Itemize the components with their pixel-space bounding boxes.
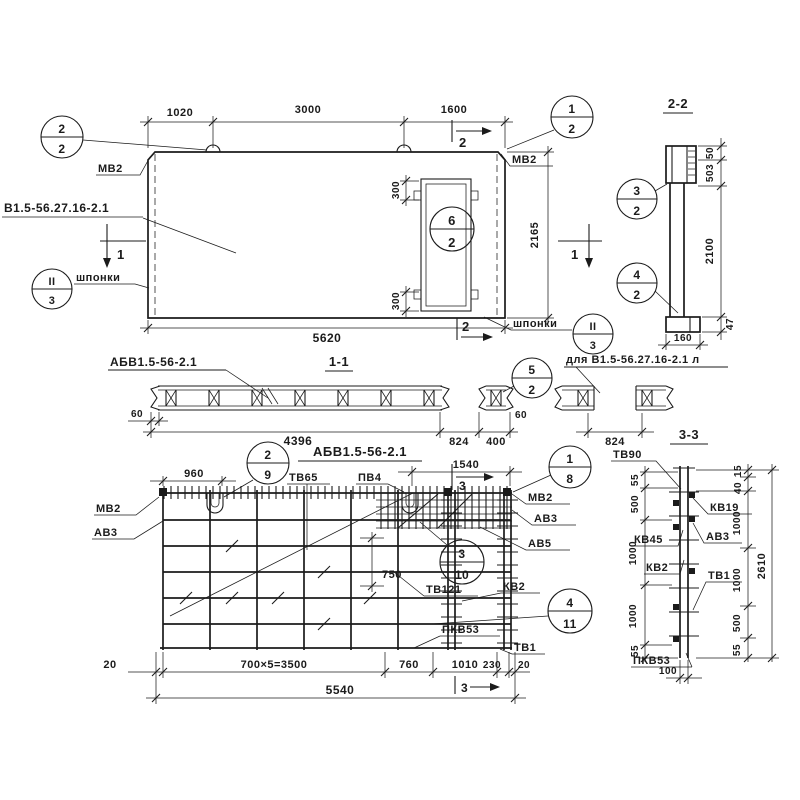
strip-geometry bbox=[151, 386, 513, 410]
sec11-alt-fragment: для В1.5-56.27.16-2.1 л 824 bbox=[555, 354, 728, 448]
dim-1010: 1010 bbox=[452, 659, 478, 671]
callout-bottom: 11 bbox=[563, 617, 577, 631]
callout-1-2: 1 2 bbox=[507, 96, 593, 149]
label-mv2-left: МВ2 bbox=[96, 503, 121, 515]
callout-bottom: 10 bbox=[455, 568, 469, 582]
callout-top: 1 bbox=[568, 102, 575, 116]
section-marker-1-left: 1 bbox=[100, 224, 146, 268]
label-mv2-right: МВ2 bbox=[512, 154, 537, 166]
callout-bottom: 3 bbox=[590, 340, 597, 352]
label-alt: для В1.5-56.27.16-2.1 л bbox=[566, 354, 700, 366]
dim-40: 40 bbox=[733, 482, 744, 494]
facade-top-dims: 1020 3000 1600 bbox=[140, 104, 513, 148]
marker-2: 2 bbox=[462, 319, 470, 334]
dim-500: 500 bbox=[630, 495, 641, 513]
label-pkv53: ПКВ53 bbox=[442, 624, 479, 636]
dim-824a: 824 bbox=[449, 436, 469, 448]
label-pv4: ПВ4 bbox=[358, 472, 382, 484]
dim-20-right: 20 bbox=[518, 660, 530, 671]
dim-1600: 1600 bbox=[441, 104, 467, 116]
dim-503: 503 bbox=[705, 164, 716, 182]
dim-5540: 5540 bbox=[326, 683, 355, 697]
opening-dims: 300 300 bbox=[391, 175, 419, 317]
section-3-3: 3-3 ТВ90 КВ45 КВ2 ПКВ53 КВ19 АВ3 bbox=[611, 427, 779, 684]
label-tv1: ТВ1 bbox=[708, 570, 730, 582]
callout-top: 5 bbox=[528, 363, 535, 377]
bar-geometry bbox=[669, 466, 699, 658]
plan-title: АБВ1.5-56-2.1 bbox=[313, 444, 407, 459]
dim-55-bottom: 55 bbox=[630, 645, 641, 657]
callout-bottom: 8 bbox=[566, 472, 573, 486]
label-keys-right: шпонки bbox=[513, 318, 557, 330]
section-marker-2-top: 2 bbox=[452, 120, 492, 150]
dim-300-top: 300 bbox=[391, 181, 402, 199]
dim-50: 50 bbox=[705, 147, 716, 159]
dim-1000c: 1000 bbox=[732, 511, 743, 535]
door-opening bbox=[414, 179, 478, 311]
section-title: 1-1 bbox=[329, 354, 349, 369]
dim-1540: 1540 bbox=[453, 459, 479, 471]
callout-4-2: 4 2 bbox=[617, 263, 678, 313]
dim-4396: 4396 bbox=[284, 434, 313, 448]
callout-bottom: 2 bbox=[58, 142, 65, 156]
callout-6-2: 6 2 bbox=[430, 207, 474, 251]
callout-bottom: 2 bbox=[633, 288, 640, 302]
marker-2: 2 bbox=[459, 135, 467, 150]
dim-1000d: 1000 bbox=[732, 568, 743, 592]
label-mv2-left: МВ2 bbox=[98, 163, 123, 175]
marker-3: 3 bbox=[459, 479, 466, 493]
callout-bottom: 3 bbox=[49, 295, 56, 307]
callout-bottom: 9 bbox=[264, 468, 271, 482]
dim-230: 230 bbox=[483, 660, 501, 671]
section-marker-2-bottom: 2 bbox=[457, 318, 493, 341]
dim-960: 960 bbox=[184, 468, 204, 480]
label-tv121: ТВ121 bbox=[426, 584, 462, 596]
section-title: 3-3 bbox=[679, 427, 699, 442]
callout-top: 1 bbox=[566, 452, 573, 466]
dim-2610: 2610 bbox=[756, 553, 768, 579]
label-av3: АВ3 bbox=[706, 531, 730, 543]
callout-bottom: 2 bbox=[633, 204, 640, 218]
marker-1: 1 bbox=[571, 247, 579, 262]
callout-top: 3 bbox=[458, 547, 465, 561]
dim-100: 100 bbox=[659, 666, 677, 677]
label-kv2: КВ2 bbox=[503, 581, 525, 593]
label-abv: АБВ1.5-56-2.1 bbox=[110, 355, 197, 369]
label-keys-left: шпонки bbox=[76, 272, 120, 284]
callout-keys-right: II 3 bbox=[573, 314, 613, 354]
callout-top: 6 bbox=[448, 213, 456, 228]
dim-160: 160 bbox=[674, 333, 692, 344]
facade-height-dim: 2165 bbox=[507, 146, 554, 324]
dim-1000b: 1000 bbox=[628, 604, 639, 628]
callout-1-8: 1 8 bbox=[513, 446, 591, 492]
label-panel-mark: В1.5-56.27.16-2.1 bbox=[4, 201, 109, 215]
label-tv90: ТВ90 bbox=[613, 449, 642, 461]
dim-1020: 1020 bbox=[167, 107, 193, 119]
label-av5: АВ5 bbox=[528, 538, 552, 550]
dim-15: 15 bbox=[733, 465, 744, 477]
facade-view: 1020 3000 1600 5620 2165 300 bbox=[2, 96, 613, 354]
facade-labels: МВ2 В1.5-56.27.16-2.1 МВ2 шпонки шпонки bbox=[2, 154, 572, 330]
dim-47: 47 bbox=[725, 318, 736, 330]
panel-drawing: 1020 3000 1600 5620 2165 300 bbox=[0, 0, 800, 800]
label-kv2: КВ2 bbox=[646, 562, 668, 574]
dim-760: 760 bbox=[399, 659, 419, 671]
reinforcement-plan: АБВ1.5-56-2.1 bbox=[92, 442, 592, 704]
dim-20-left: 20 bbox=[103, 659, 116, 671]
callout-bottom: 2 bbox=[528, 383, 535, 397]
callout-top: II bbox=[48, 276, 55, 288]
label-tv65: ТВ65 bbox=[289, 472, 318, 484]
callout-top: 2 bbox=[58, 122, 65, 136]
sec11-dims: 60 4396 824 400 60 bbox=[128, 409, 527, 448]
section-marker-1-right: 1 bbox=[558, 224, 602, 268]
callout-bottom: 2 bbox=[448, 235, 456, 250]
dim-60-right: 60 bbox=[515, 410, 527, 421]
dim-300-bottom: 300 bbox=[391, 292, 402, 310]
callout-top: II bbox=[589, 321, 596, 333]
dim-55-top: 55 bbox=[630, 474, 641, 486]
dim-2165: 2165 bbox=[529, 222, 541, 248]
label-av3-right: АВ3 bbox=[534, 513, 558, 525]
dim-750: 750 bbox=[382, 569, 402, 581]
label-av3-left: АВ3 bbox=[94, 527, 118, 539]
dim-824b: 824 bbox=[605, 436, 625, 448]
dim-3000: 3000 bbox=[295, 104, 321, 116]
dim-60-left: 60 bbox=[131, 409, 143, 420]
callout-top: 2 bbox=[264, 448, 271, 462]
callout-top: 3 bbox=[633, 184, 640, 198]
drawing-sheet: 1020 3000 1600 5620 2165 300 bbox=[0, 0, 800, 800]
sec33-right-dims: 15 40 1000 1000 500 55 2610 bbox=[696, 464, 779, 662]
callout-keys-left: II 3 bbox=[32, 269, 72, 309]
section-title: 2-2 bbox=[668, 96, 688, 111]
dim-500b: 500 bbox=[732, 614, 743, 632]
dim-3500: 700×5=3500 bbox=[241, 659, 308, 671]
callout-bottom: 2 bbox=[568, 122, 575, 136]
section-1-1: АБВ1.5-56-2.1 1-1 5 2 bbox=[108, 354, 728, 448]
dim-5620: 5620 bbox=[313, 331, 342, 345]
section-marker-3-bottom: 3 bbox=[455, 676, 500, 695]
label-tv1: ТВ1 bbox=[514, 642, 536, 654]
section-2-2: 2-2 3 2 4 2 bbox=[617, 96, 736, 350]
dim-2100: 2100 bbox=[704, 238, 716, 264]
marker-3: 3 bbox=[461, 681, 468, 695]
dim-1000a: 1000 bbox=[628, 541, 639, 565]
dim-55-right: 55 bbox=[732, 644, 743, 656]
callout-3-2: 3 2 bbox=[617, 179, 667, 219]
label-mv2-right: МВ2 bbox=[528, 492, 553, 504]
marker-1: 1 bbox=[117, 247, 125, 262]
callout-top: 4 bbox=[566, 596, 573, 610]
dim-400: 400 bbox=[486, 436, 506, 448]
callout-top: 4 bbox=[633, 268, 640, 282]
